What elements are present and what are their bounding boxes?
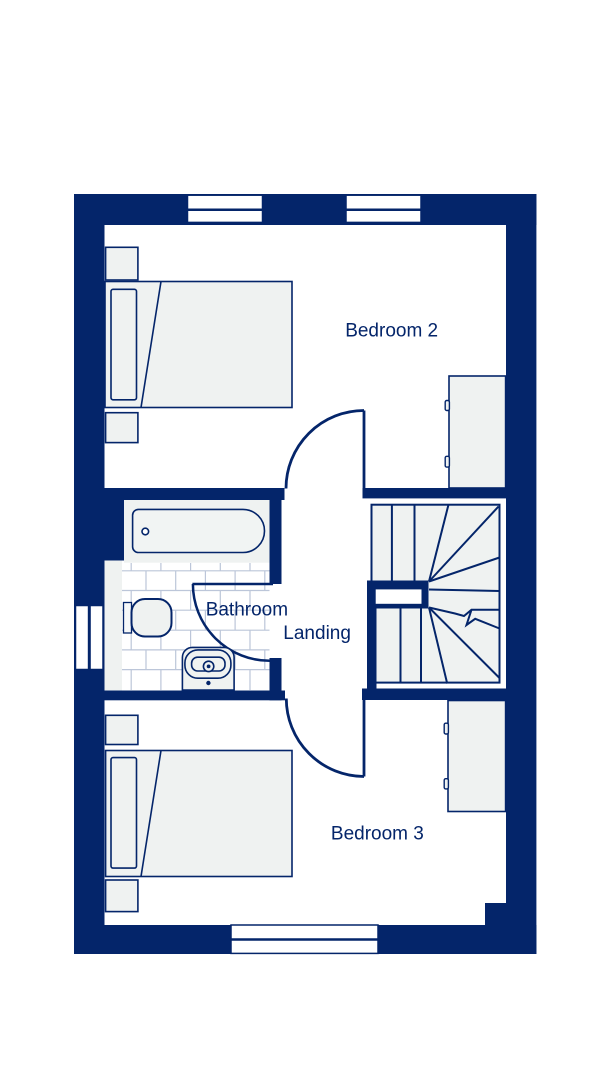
svg-text:Landing: Landing (283, 623, 351, 644)
svg-text:Bedroom 3: Bedroom 3 (331, 824, 424, 845)
svg-text:Bedroom 2: Bedroom 2 (345, 321, 438, 342)
svg-text:Bathroom: Bathroom (206, 600, 288, 621)
